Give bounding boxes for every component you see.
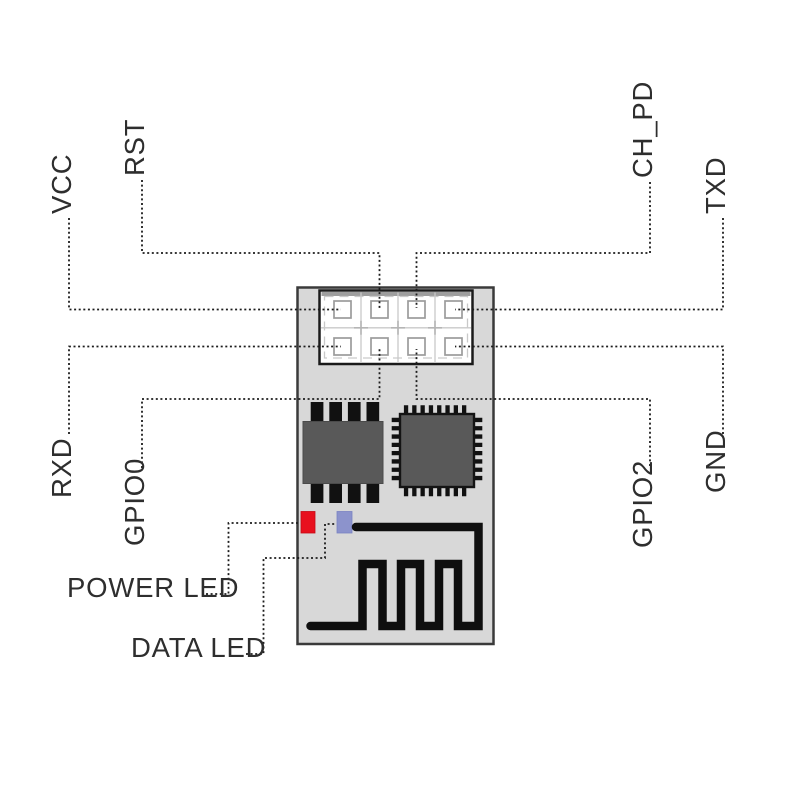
flash-chip-body bbox=[303, 422, 383, 484]
header-pad-rst bbox=[371, 301, 388, 318]
data-led-label: DATA LED bbox=[131, 632, 266, 663]
pin-label-gpio2: GPIO2 bbox=[627, 460, 658, 548]
leader-line-txd bbox=[455, 218, 723, 310]
power-led bbox=[301, 512, 315, 534]
pin-label-gpio0: GPIO0 bbox=[119, 458, 150, 546]
flash-chip bbox=[303, 412, 383, 493]
pin-label-ch-pd: CH_PD bbox=[627, 81, 658, 178]
leader-line-gnd bbox=[455, 347, 723, 435]
pinout-diagram: VCC RST CH_PD TXD RXD GPIO0 GPIO2 GND PO… bbox=[0, 0, 800, 800]
pin-label-rxd: RXD bbox=[46, 438, 77, 498]
power-led-label: POWER LED bbox=[67, 572, 239, 603]
data-led bbox=[337, 512, 352, 534]
diagram-svg: VCC RST CH_PD TXD RXD GPIO0 GPIO2 GND PO… bbox=[0, 0, 800, 800]
header-pad-gpio0 bbox=[371, 338, 388, 355]
pin-label-vcc: VCC bbox=[46, 154, 77, 214]
esp-chip-body bbox=[400, 414, 474, 487]
pin-header-top-shadow bbox=[322, 292, 471, 296]
pin-label-rst: RST bbox=[119, 119, 150, 176]
header-pad-gpio2 bbox=[408, 338, 425, 355]
pin-label-txd: TXD bbox=[700, 157, 731, 214]
pin-label-gnd: GND bbox=[700, 429, 731, 493]
esp-chip bbox=[396, 410, 478, 492]
